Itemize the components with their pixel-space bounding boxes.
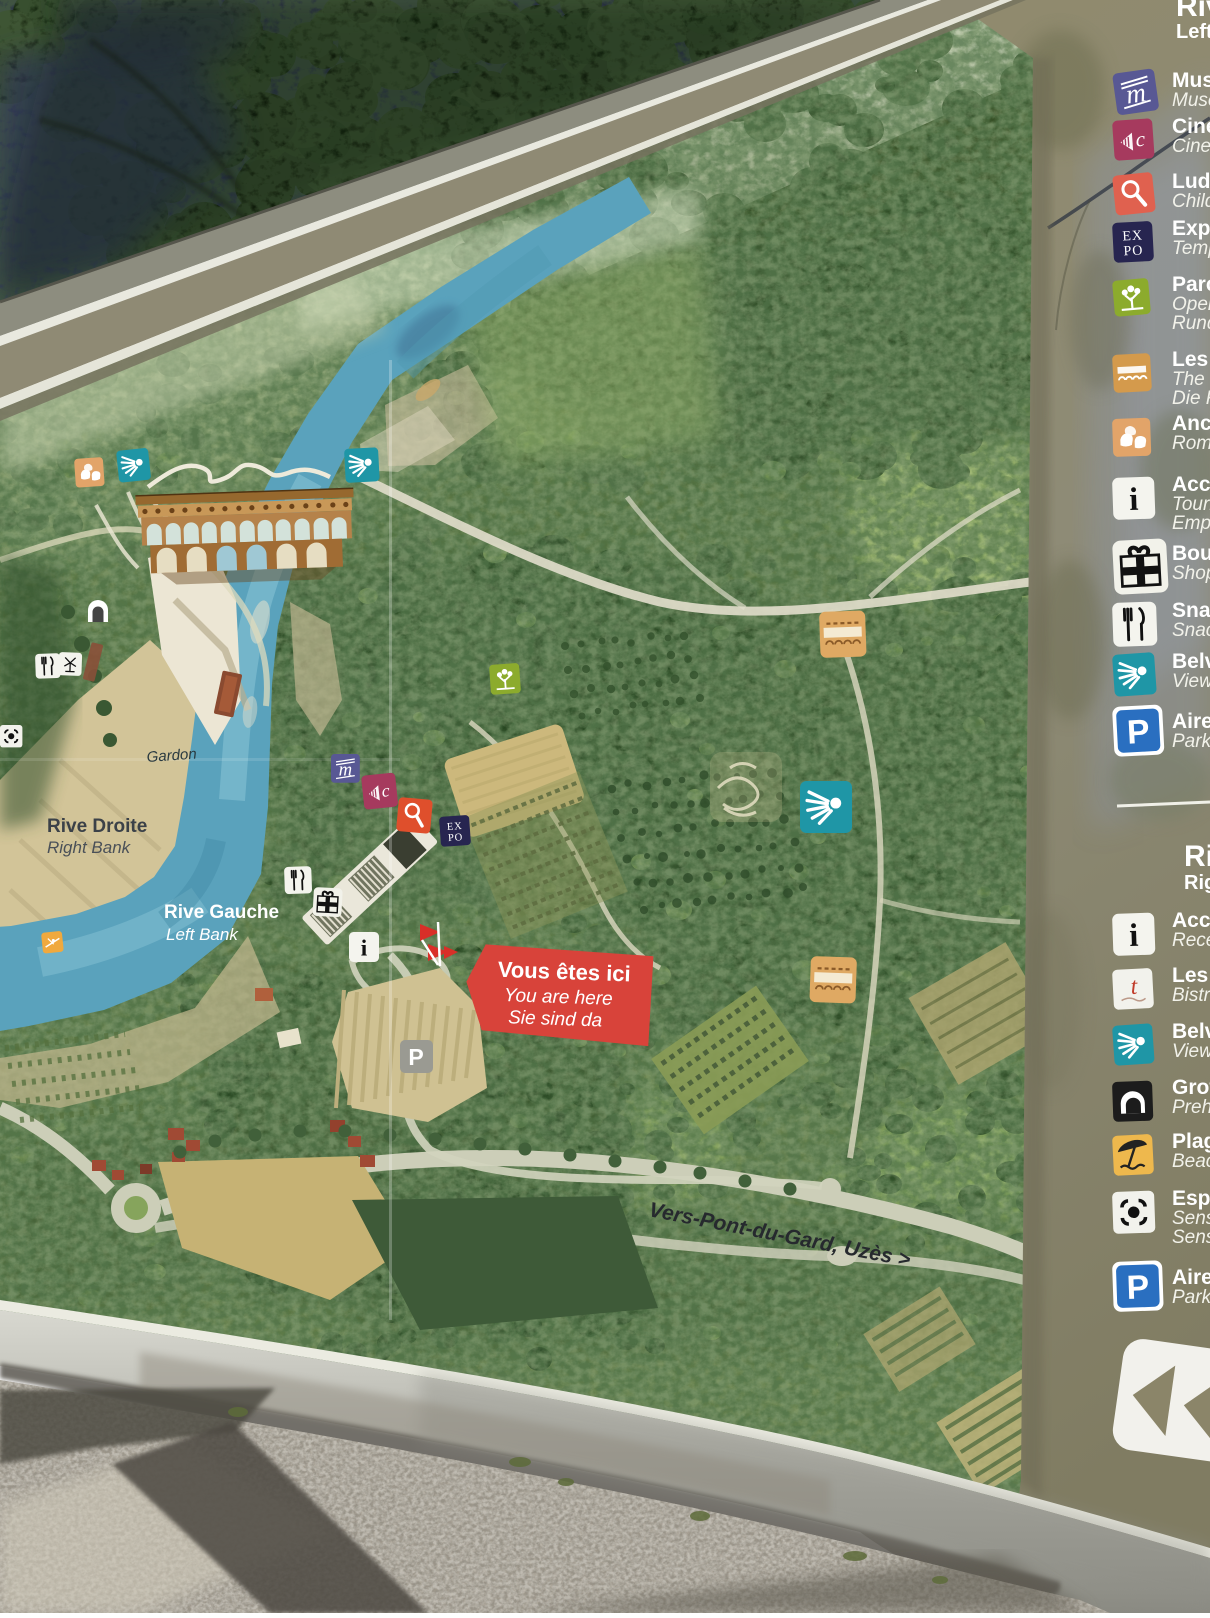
svg-text:Snack: Snack	[1172, 599, 1210, 622]
svg-text:Belvédère: Belvédère	[1172, 650, 1210, 673]
svg-text:Gardon: Gardon	[146, 746, 197, 766]
svg-text:Ludo: Ludo	[1172, 170, 1210, 193]
svg-text:Belvédère: Belvédère	[1172, 1020, 1210, 1043]
svg-text:Espace: Espace	[1172, 1187, 1210, 1210]
svg-text:Rive Gauche: Rive Gauche	[164, 902, 279, 923]
svg-text:Rive droite: Rive droite	[1184, 840, 1210, 873]
svg-text:Left bank: Left bank	[1176, 21, 1210, 43]
svg-text:Right Bank: Right Bank	[47, 838, 132, 857]
svg-text:Rundgang: Rundgang	[1172, 313, 1210, 334]
svg-text:Aire de: Aire de	[1172, 710, 1210, 733]
svg-text:Parking: Parking	[1172, 731, 1210, 752]
svg-text:Ancien: Ancien	[1172, 412, 1210, 435]
svg-text:Plage: Plage	[1172, 1130, 1210, 1153]
svg-text:Roman remains: Roman remains	[1172, 433, 1210, 454]
svg-text:Accueil: Accueil	[1172, 473, 1210, 496]
svg-text:Boutique: Boutique	[1172, 542, 1210, 565]
svg-text:Grotte: Grotte	[1172, 1076, 1210, 1099]
svg-text:Les concessions: Les concessions	[1172, 348, 1210, 371]
svg-text:Viewpoint: Viewpoint	[1172, 671, 1210, 692]
svg-text:Rive gauche: Rive gauche	[1176, 0, 1210, 23]
svg-text:Les terrasses: Les terrasses	[1172, 964, 1210, 987]
svg-text:Bistrot: Bistrot	[1172, 985, 1210, 1006]
svg-text:Parking: Parking	[1172, 1287, 1210, 1308]
svg-text:Rive Droite: Rive Droite	[47, 816, 147, 837]
svg-text:Children area: Children area	[1172, 191, 1210, 212]
svg-text:Die Konzession: Die Konzession	[1172, 388, 1210, 409]
svg-text:Sie sind da: Sie sind da	[508, 1007, 603, 1031]
svg-text:Snack / Imbiss: Snack / Imbiss	[1172, 620, 1210, 641]
svg-text:Open-air discov.: Open-air discov.	[1172, 294, 1210, 315]
svg-text:Temporary exh.: Temporary exh.	[1172, 238, 1210, 259]
svg-text:Museum / Museum: Museum / Museum	[1172, 90, 1210, 111]
svg-text:Viewpoint: Viewpoint	[1172, 1041, 1210, 1062]
svg-text:Vous êtes ici: Vous êtes ici	[497, 957, 631, 987]
svg-text:You are here: You are here	[504, 985, 613, 1010]
svg-text:Shop / Laden: Shop / Laden	[1172, 563, 1210, 584]
svg-text:Reception: Reception	[1172, 930, 1210, 951]
svg-text:Musée: Musée	[1172, 69, 1210, 92]
svg-text:Expo: Expo	[1172, 217, 1210, 240]
svg-text:Beach / Strand: Beach / Strand	[1172, 1151, 1210, 1172]
svg-text:Prehistoric cave: Prehistoric cave	[1172, 1097, 1210, 1118]
svg-text:Right bank: Right bank	[1184, 872, 1210, 894]
svg-text:Parcours: Parcours	[1172, 273, 1210, 296]
svg-text:Cinema / Kino: Cinema / Kino	[1172, 136, 1210, 157]
svg-text:Sensitive area: Sensitive area	[1172, 1208, 1210, 1229]
svg-text:Left Bank: Left Bank	[166, 925, 239, 944]
svg-text:Empfang: Empfang	[1172, 513, 1210, 534]
svg-text:P: P	[408, 1044, 423, 1070]
svg-text:Sensibel: Sensibel	[1172, 1227, 1210, 1248]
svg-text:Tourist info: Tourist info	[1172, 494, 1210, 515]
svg-text:The concessions: The concessions	[1172, 369, 1210, 390]
svg-text:Accueil: Accueil	[1172, 909, 1210, 932]
svg-text:Aire de: Aire de	[1172, 1266, 1210, 1289]
svg-text:Cinéma: Cinéma	[1172, 115, 1210, 138]
